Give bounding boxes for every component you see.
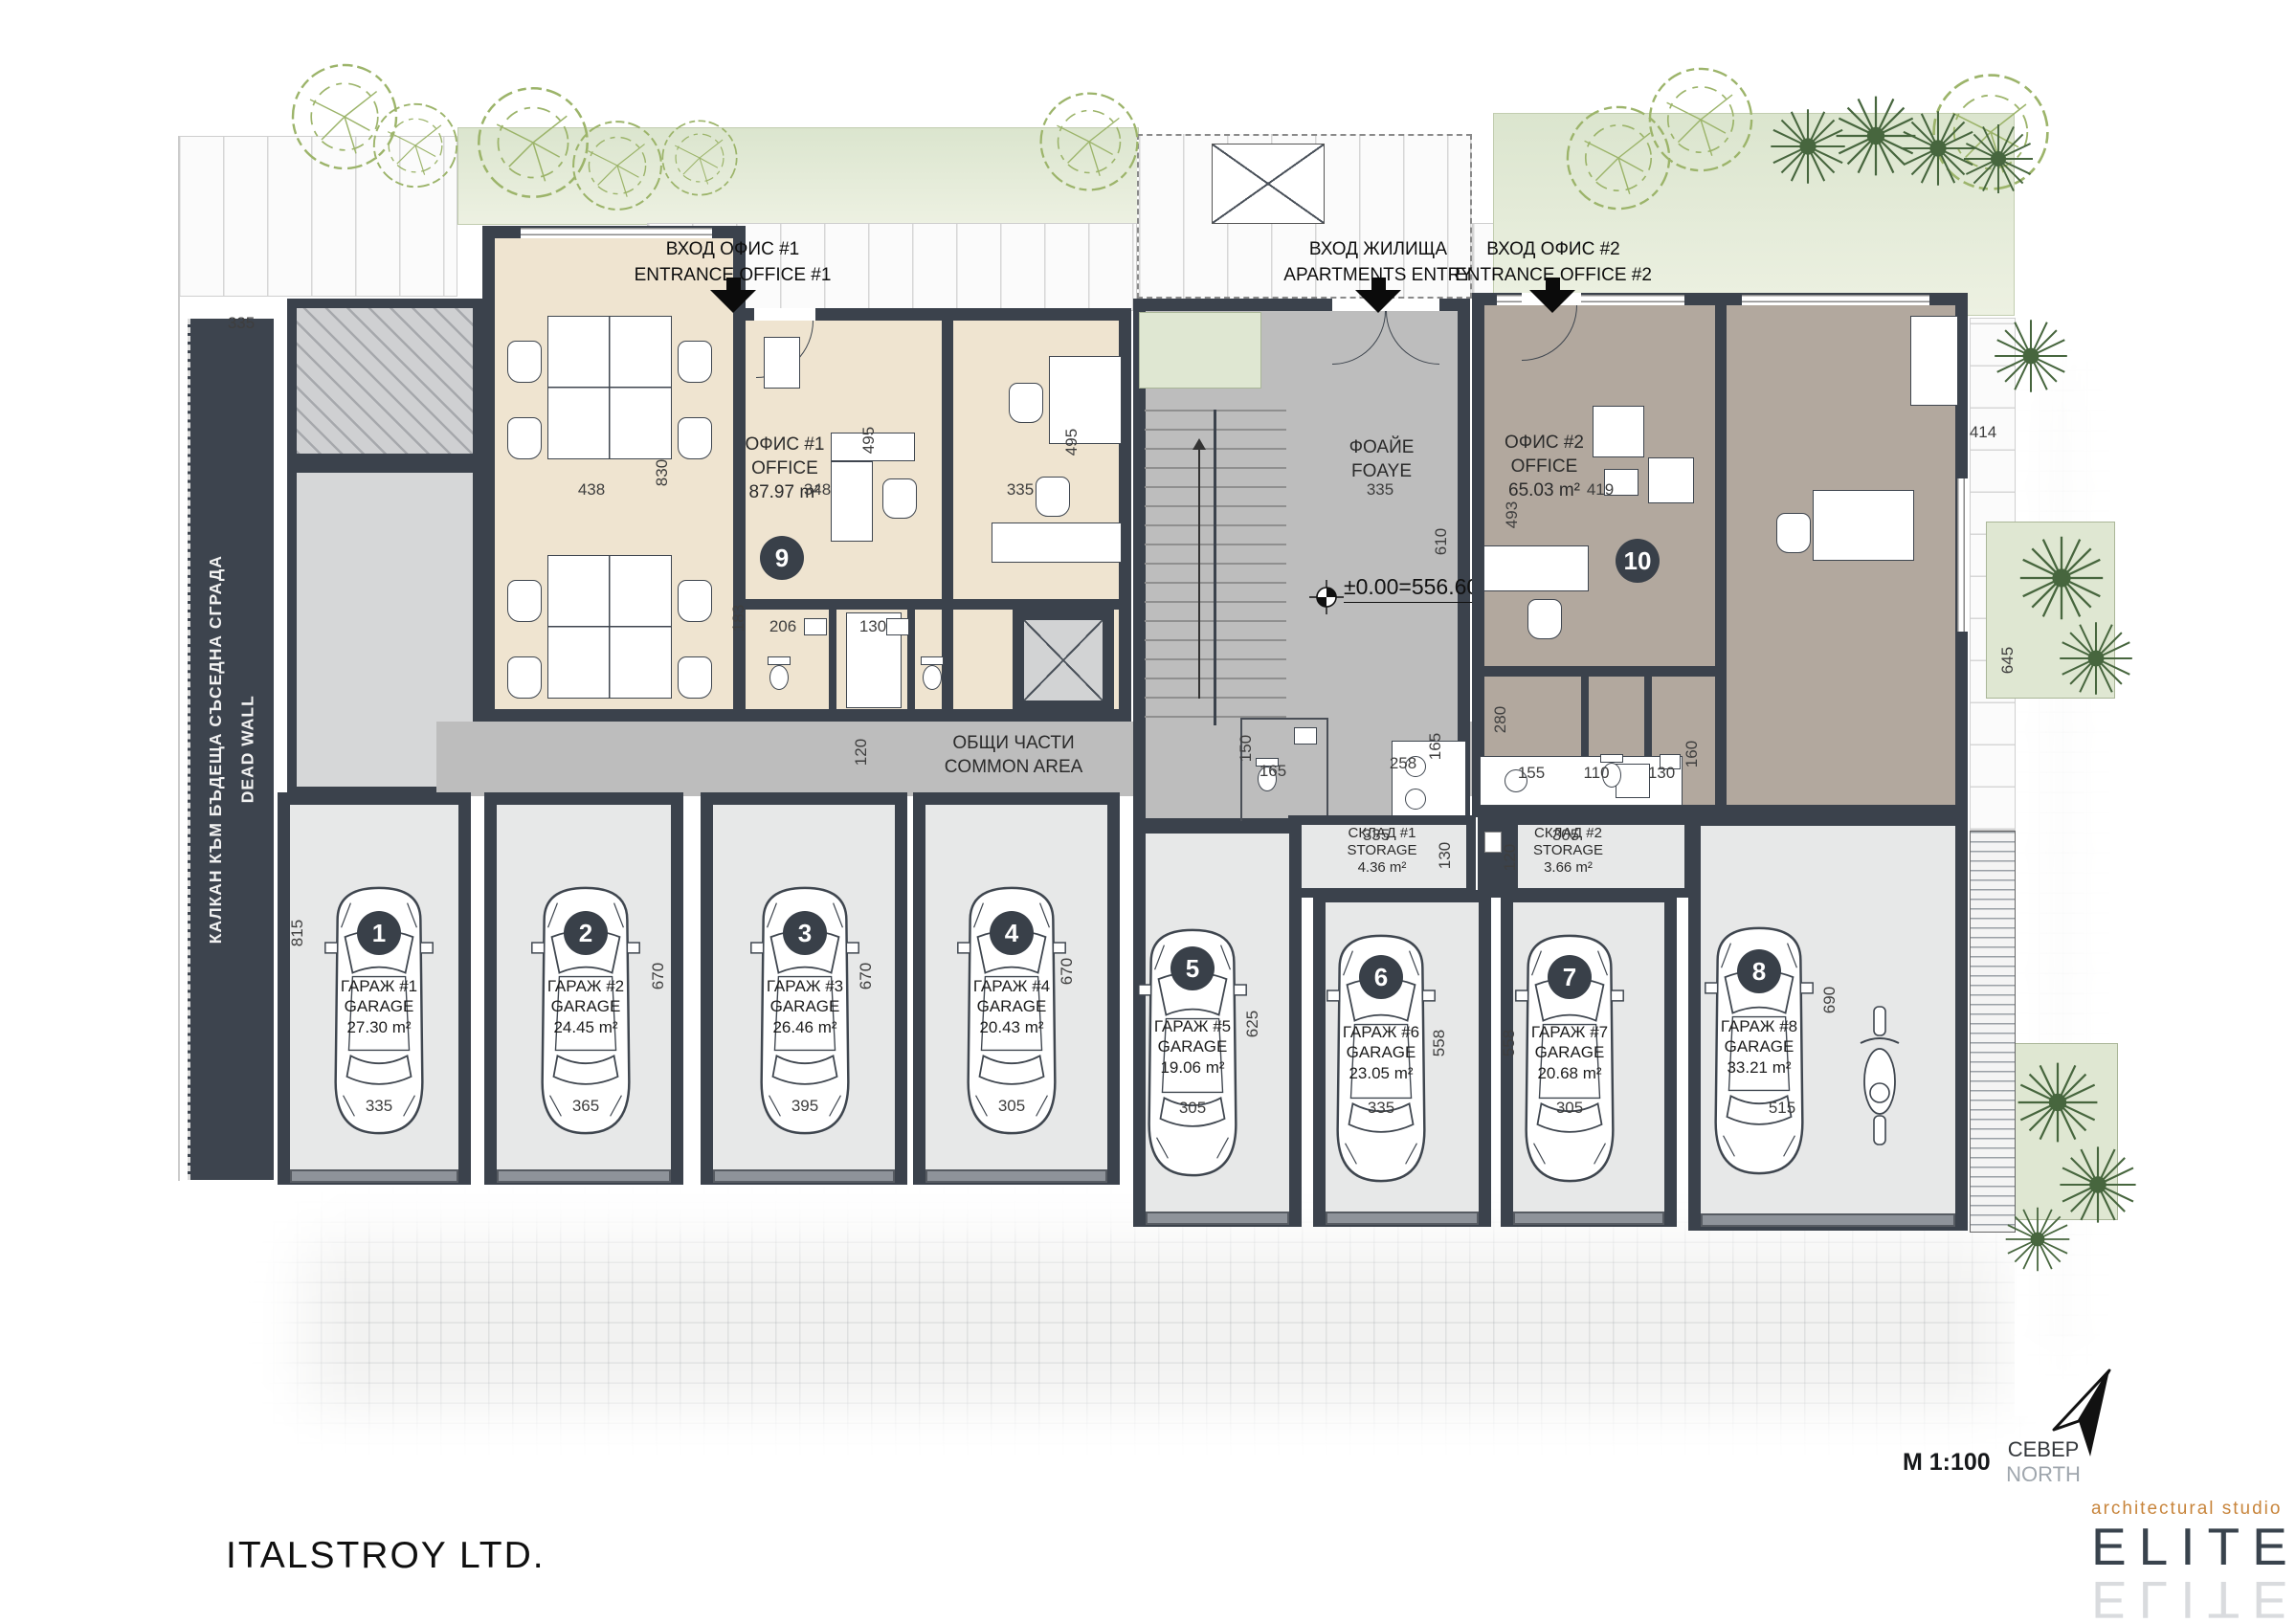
chair — [678, 580, 712, 622]
foyer-planter — [1139, 312, 1261, 389]
office2-desk — [1483, 545, 1589, 591]
arrow-stem — [1546, 278, 1560, 290]
garage-name-bg: ГАРАЖ #1 — [307, 976, 451, 996]
motorcycle-icon — [1851, 1005, 1908, 1148]
logo-name-reflection: ELITE — [2091, 1571, 2283, 1623]
staircase-divider — [1214, 410, 1216, 725]
tree-icon — [658, 117, 741, 199]
dim-label: 305 — [1537, 826, 1594, 845]
dim-label: 515 — [1753, 1099, 1811, 1118]
floor-plan-canvas: КАЛКАН КЪМ БЪДЕЩА СЪСЕДНА СГРАДА DEAD WA… — [0, 0, 2296, 1623]
garage-8-label: ГАРАЖ #8 GARAGE 33.21 m² — [1687, 1016, 1831, 1078]
garage-door — [1146, 1212, 1289, 1225]
office1-name-en: OFFICE — [699, 456, 871, 480]
office2-name-bg: ОФИС #2 — [1460, 431, 1628, 455]
common-area-bg: ОБЩИ ЧАСТИ — [923, 731, 1104, 755]
office1-partition-1 — [733, 321, 746, 722]
garage-area: 24.45 m² — [514, 1017, 658, 1037]
dim-label: 645 — [1998, 632, 2017, 689]
chair — [882, 478, 917, 519]
stove-icon — [1405, 789, 1426, 810]
dim-label: 280 — [1491, 691, 1510, 748]
conifer-tree-icon — [2002, 1204, 2073, 1275]
office1-partition-2 — [942, 321, 953, 709]
entrance-office2-bg: ВХОД ОФИС #2 — [1415, 237, 1692, 263]
garage-door — [1326, 1212, 1479, 1225]
staircase-walkline — [1198, 450, 1200, 699]
conifer-tree-icon — [2056, 618, 2136, 699]
garage-area: 20.43 m² — [940, 1017, 1083, 1037]
garage-2-badge: 2 — [564, 911, 608, 955]
entrance-arrow-icon — [1355, 278, 1401, 313]
garage-area: 33.21 m² — [1687, 1057, 1831, 1078]
dim-label: 414 — [1954, 423, 2012, 442]
office1-desk-right — [1049, 356, 1122, 444]
dim-label: 670 — [649, 947, 668, 1005]
scale-label: M 1:100 — [1903, 1449, 1991, 1477]
dim-label: 335 — [1348, 826, 1405, 845]
sink-icon — [1294, 727, 1317, 745]
site-boundary-line — [178, 136, 180, 1181]
dim-label: 165 — [1426, 718, 1445, 775]
office2-armchair — [1648, 457, 1694, 503]
arrow-stem — [726, 278, 741, 290]
dim-label: 365 — [557, 1097, 614, 1116]
garage-door — [1513, 1212, 1664, 1225]
elevator-icon — [1013, 609, 1114, 712]
garage-name-bg: ГАРАЖ #3 — [733, 976, 877, 996]
garage-name-bg: ГАРАЖ #8 — [1687, 1016, 1831, 1036]
dim-label: 110 — [1568, 764, 1625, 783]
chair — [1527, 599, 1562, 639]
annex-room-hatched — [287, 299, 482, 463]
dim-label: 183 — [729, 589, 748, 647]
garage-area: 27.30 m² — [307, 1017, 451, 1037]
staircase-arrow — [1193, 438, 1206, 450]
skylight-box — [1212, 144, 1325, 224]
chair — [678, 341, 712, 383]
dim-label: 305 — [983, 1097, 1040, 1116]
dim-label: 690 — [1820, 971, 1839, 1029]
dim-label: 335 — [350, 1097, 408, 1116]
garage-7-badge: 7 — [1548, 955, 1592, 999]
garage-8-badge: 8 — [1737, 949, 1781, 993]
dim-label: 305 — [1541, 1099, 1598, 1118]
office2-kitchen-wall — [1472, 666, 1727, 677]
garage-door — [497, 1169, 671, 1183]
entrance-arrow-icon — [710, 278, 756, 313]
tree-icon — [1036, 88, 1143, 195]
garage-area: 19.06 m² — [1121, 1057, 1264, 1078]
dim-label: 419 — [1572, 480, 1629, 500]
dim-label: 206 — [754, 617, 812, 636]
north-label: СЕВЕР NORTH — [1991, 1437, 2096, 1487]
garage-6-badge: 6 — [1359, 955, 1403, 999]
office1-sofa — [764, 337, 800, 389]
exterior-stair-right — [1970, 831, 2016, 1233]
window-office2-side — [1957, 478, 1968, 632]
toilet-icon — [923, 665, 942, 690]
garage-3-badge: 3 — [783, 911, 827, 955]
garage-name-en: GARAGE — [307, 996, 451, 1016]
foyer-name-bg: ФОАЙЕ — [1317, 435, 1446, 459]
dim-label: 130 — [844, 617, 902, 636]
common-area-en: COMMON AREA — [923, 755, 1104, 779]
dead-wall-label-en: DEAD WALL — [233, 555, 264, 944]
dim-label: 335 — [1352, 1099, 1410, 1118]
garage-name-en: GARAGE — [514, 996, 658, 1016]
office2-name-en: OFFICE — [1460, 455, 1628, 478]
garage-name-en: GARAGE — [733, 996, 877, 1016]
dim-label: 165 — [1244, 762, 1302, 781]
tree-icon — [568, 117, 666, 214]
dim-label: 160 — [1683, 725, 1702, 783]
level-marker-icon — [1309, 580, 1344, 614]
office1-desk-right-2 — [992, 522, 1122, 563]
garage-door — [925, 1169, 1107, 1183]
conifer-tree-icon — [1960, 121, 2037, 197]
north-label-en: NORTH — [1991, 1462, 2096, 1487]
dim-label: 815 — [288, 904, 307, 962]
dim-label: 830 — [653, 444, 672, 501]
chair — [678, 656, 712, 699]
entrance-arrow-icon — [1529, 278, 1575, 313]
office1-name-bg: ОФИС #1 — [699, 433, 871, 456]
dim-label: 493 — [1503, 486, 1522, 544]
office2-badge: 10 — [1616, 539, 1660, 583]
garage-1-badge: 1 — [357, 911, 401, 955]
dim-label: 670 — [857, 947, 876, 1005]
office1-bath-divider-1 — [829, 610, 836, 709]
conifer-tree-icon — [2016, 532, 2107, 624]
level-mark-text: ±0.00=556.60 — [1344, 574, 1479, 603]
dim-label: 335 — [212, 314, 270, 333]
dim-label: 395 — [776, 1097, 834, 1116]
tree-icon — [1644, 63, 1757, 176]
dim-label: 130 — [1436, 827, 1455, 884]
conifer-tree-icon — [2014, 1058, 2102, 1146]
garage-door — [290, 1169, 458, 1183]
office1-badge: 9 — [760, 536, 804, 580]
dim-label: 305 — [1164, 1099, 1221, 1118]
toilet-tank — [1600, 754, 1623, 763]
office2-cabinet — [1910, 316, 1958, 406]
garage-area: 26.46 m² — [733, 1017, 877, 1037]
chair — [507, 341, 542, 383]
garage-2-label: ГАРАЖ #2 GARAGE 24.45 m² — [514, 976, 658, 1037]
dim-label: 610 — [1432, 513, 1451, 570]
dim-label: 558 — [1430, 1014, 1449, 1072]
dim-label: 495 — [859, 411, 879, 469]
chair — [1009, 383, 1043, 423]
north-label-bg: СЕВЕР — [1991, 1437, 2096, 1462]
office1-door-gap — [754, 308, 815, 321]
dim-label: 130 — [1633, 764, 1690, 783]
arrow-head — [1529, 290, 1575, 313]
arrow-head — [1355, 290, 1401, 313]
garage-door — [1701, 1213, 1955, 1227]
garage-name-bg: ГАРАЖ #7 — [1498, 1022, 1641, 1042]
dim-label: 155 — [1503, 764, 1560, 783]
toilet-tank — [921, 656, 944, 665]
garage-area: 20.68 m² — [1498, 1063, 1641, 1083]
office2-desk-right — [1813, 490, 1914, 561]
garage-1-label: ГАРАЖ #1 GARAGE 27.30 m² — [307, 976, 451, 1037]
dim-label: 335 — [1351, 480, 1409, 500]
garage-name-bg: ГАРАЖ #2 — [514, 976, 658, 996]
office1-table-1 — [547, 316, 672, 459]
garage-name-en: GARAGE — [1687, 1036, 1831, 1056]
chair — [1776, 513, 1811, 553]
office1-table-2 — [547, 555, 672, 699]
studio-logo: architectural studio ELITE ELITE — [2091, 1499, 2283, 1623]
garage-7-label: ГАРАЖ #7 GARAGE 20.68 m² — [1498, 1022, 1641, 1083]
arrow-head — [710, 290, 756, 313]
dim-label: 335 — [992, 480, 1049, 500]
toilet-tank — [768, 656, 791, 665]
dim-label: 625 — [1243, 995, 1262, 1053]
garage-door — [713, 1169, 895, 1183]
office2-partition — [1715, 293, 1727, 817]
dead-wall-label-bg: КАЛКАН КЪМ БЪДЕЩА СЪСЕДНА СГРАДА — [200, 555, 232, 944]
dim-label: 348 — [789, 480, 846, 500]
logo-name: ELITE — [2091, 1520, 2283, 1575]
arrow-stem — [1371, 278, 1386, 290]
entrance-office1-bg: ВХОД ОФИС #1 — [601, 237, 864, 263]
dim-label: 120 — [1501, 829, 1520, 886]
foyer-label: ФОАЙЕ FOAYE — [1317, 435, 1446, 483]
dim-label: 558 — [1500, 1014, 1519, 1072]
conifer-tree-icon — [1991, 316, 2071, 396]
chair — [507, 580, 542, 622]
dim-label: 120 — [852, 723, 871, 781]
dim-label: 670 — [1058, 943, 1077, 1000]
chair — [507, 656, 542, 699]
dim-label: 495 — [1062, 413, 1081, 471]
dim-label: 438 — [563, 480, 620, 500]
tree-icon — [369, 100, 461, 191]
garage-4-badge: 4 — [990, 911, 1034, 955]
dead-wall: КАЛКАН КЪМ БЪДЕЩА СЪСЕДНА СГРАДА DEAD WA… — [188, 319, 274, 1180]
garage-name-en: GARAGE — [1498, 1042, 1641, 1062]
chair — [507, 417, 542, 459]
dead-wall-label: КАЛКАН КЪМ БЪДЕЩА СЪСЕДНА СГРАДА DEAD WA… — [200, 555, 264, 944]
company-title: ITALSTROY LTD. — [226, 1535, 546, 1577]
window-office2-right — [1742, 295, 1929, 305]
garage-3-label: ГАРАЖ #3 GARAGE 26.46 m² — [733, 976, 877, 1037]
garage-5-badge: 5 — [1170, 946, 1215, 990]
toilet-icon — [769, 665, 789, 690]
common-area-label: ОБЩИ ЧАСТИ COMMON AREA — [923, 731, 1104, 779]
dim-label: 258 — [1374, 754, 1432, 773]
